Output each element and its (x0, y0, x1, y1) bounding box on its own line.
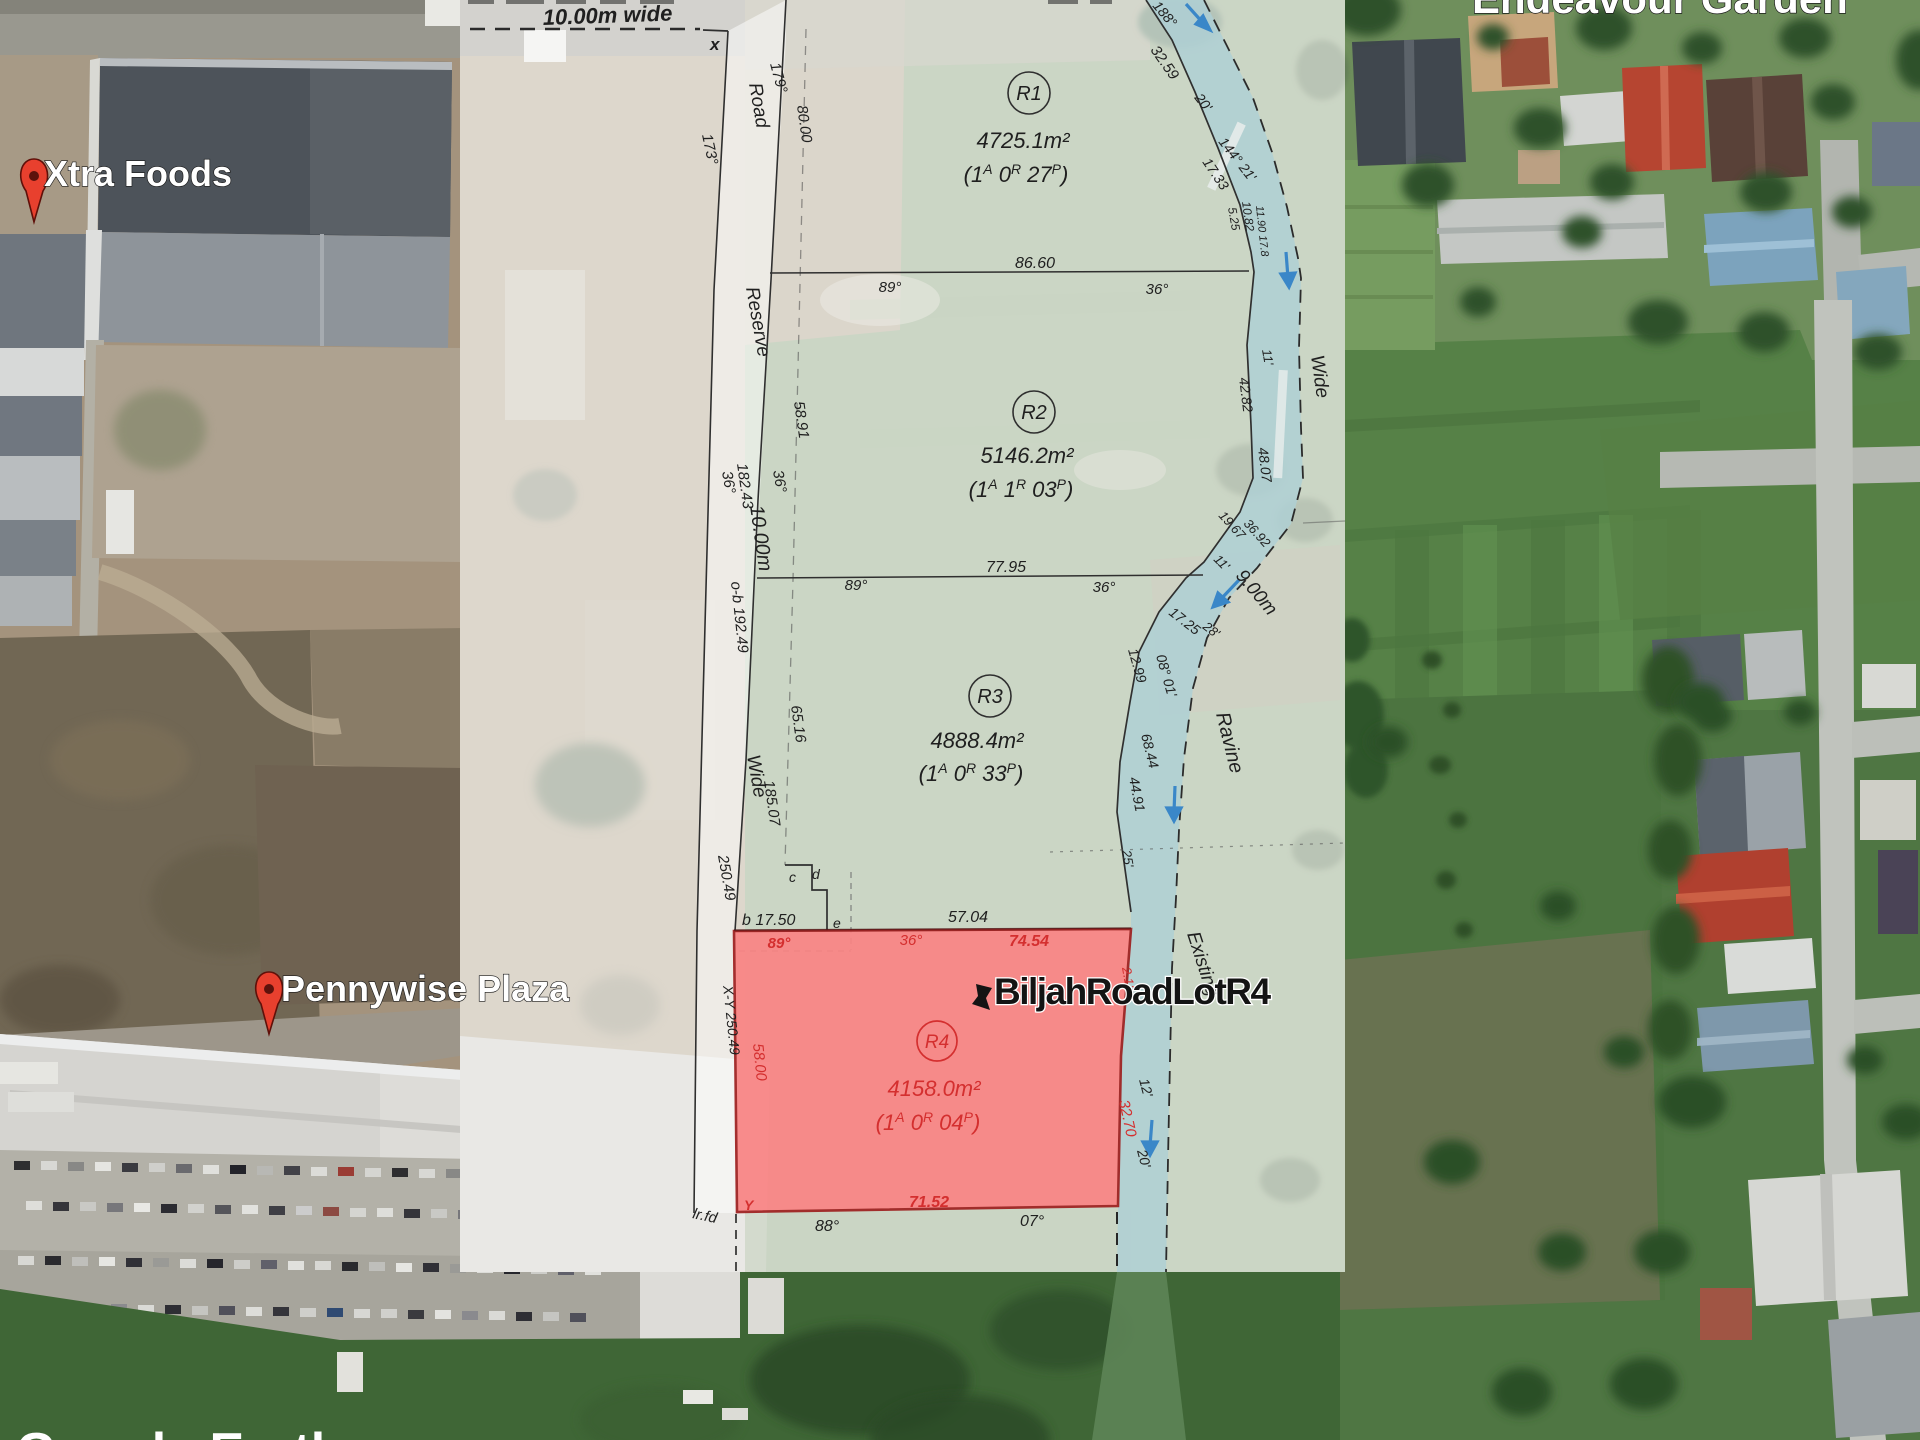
svg-text:4725.1m²: 4725.1m² (977, 128, 1071, 153)
svg-text:4888.4m²: 4888.4m² (931, 728, 1025, 753)
svg-text:e: e (833, 915, 841, 931)
svg-text:Endeavour Garden: Endeavour Garden (1472, 0, 1848, 22)
svg-text:77.95: 77.95 (986, 559, 1026, 576)
svg-text:07°: 07° (1020, 1213, 1045, 1230)
svg-text:Pennywise Plaza: Pennywise Plaza (281, 968, 570, 1009)
svg-text:x: x (709, 35, 721, 54)
svg-text:4158.0m²: 4158.0m² (888, 1076, 982, 1101)
svg-text:10.00m wide: 10.00m wide (542, 0, 672, 30)
svg-text:89°: 89° (879, 279, 902, 296)
svg-text:c: c (789, 869, 796, 885)
svg-text:R2: R2 (1021, 402, 1047, 424)
svg-text:25': 25' (1119, 848, 1137, 869)
svg-text:Xtra Foods: Xtra Foods (44, 153, 232, 194)
svg-text:b 17.50: b 17.50 (742, 912, 795, 929)
svg-text:Google Earth: Google Earth (16, 1423, 342, 1440)
svg-text:86.60: 86.60 (1015, 255, 1055, 272)
svg-text:89°: 89° (845, 577, 868, 594)
svg-text:36°: 36° (1093, 579, 1116, 596)
svg-text:d: d (812, 866, 821, 882)
svg-text:11': 11' (1259, 348, 1277, 367)
svg-text:57.04: 57.04 (948, 909, 988, 926)
svg-text:5146.2m²: 5146.2m² (981, 443, 1075, 468)
svg-text:36°: 36° (900, 932, 923, 949)
svg-text:74.54: 74.54 (1009, 933, 1049, 950)
svg-text:71.52: 71.52 (909, 1194, 949, 1211)
svg-text:36°: 36° (1146, 281, 1169, 298)
svg-text:R1: R1 (1016, 83, 1042, 105)
svg-text:88°: 88° (815, 1218, 840, 1235)
svg-text:R4: R4 (925, 1032, 949, 1053)
svg-text:BiljahRoadLotR4: BiljahRoadLotR4 (994, 971, 1271, 1012)
svg-text:89°: 89° (768, 935, 792, 952)
svg-text:R3: R3 (977, 686, 1003, 708)
